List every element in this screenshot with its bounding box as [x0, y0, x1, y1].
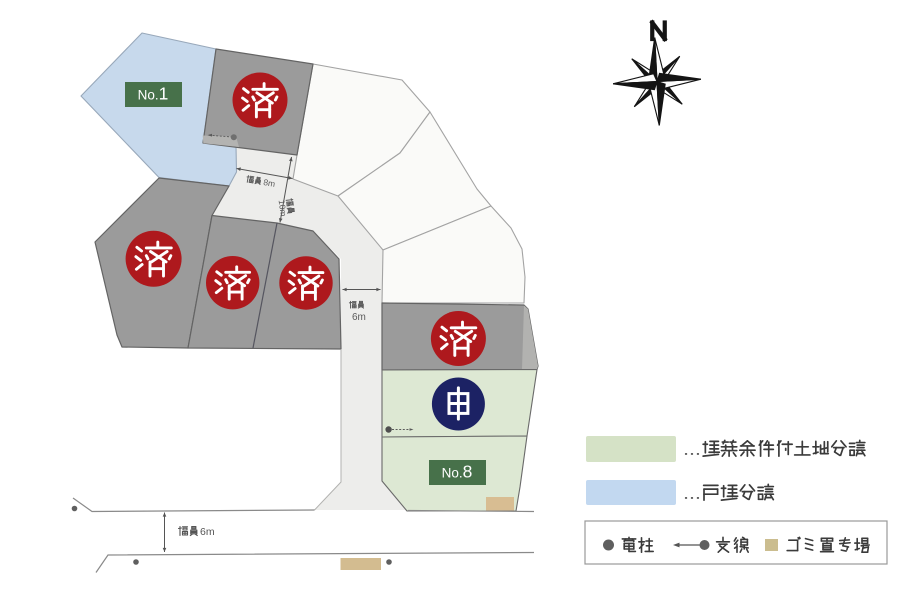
svg-text:6m: 6m — [200, 526, 215, 538]
svg-text:6m: 6m — [352, 312, 366, 323]
svg-text:10m: 10m — [277, 199, 289, 217]
svg-text:8m: 8m — [263, 177, 276, 189]
